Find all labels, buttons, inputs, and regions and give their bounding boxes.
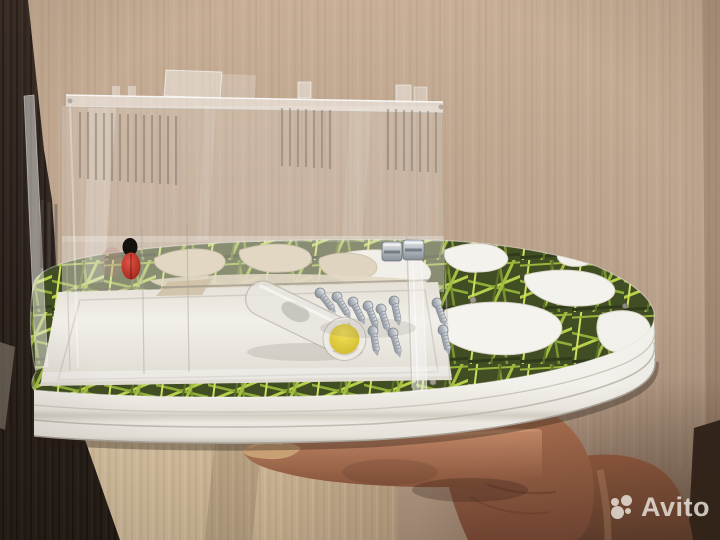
logo-dot xyxy=(621,495,632,506)
logo-dot xyxy=(625,508,631,514)
vignette xyxy=(0,0,720,540)
photo-frame: Avito xyxy=(0,0,720,540)
watermark-brand-text: Avito xyxy=(641,494,710,521)
logo-dot xyxy=(611,506,624,519)
scene xyxy=(0,0,720,540)
avito-logo-icon xyxy=(611,495,634,520)
avito-watermark: Avito xyxy=(611,494,710,521)
logo-dot xyxy=(611,498,619,506)
